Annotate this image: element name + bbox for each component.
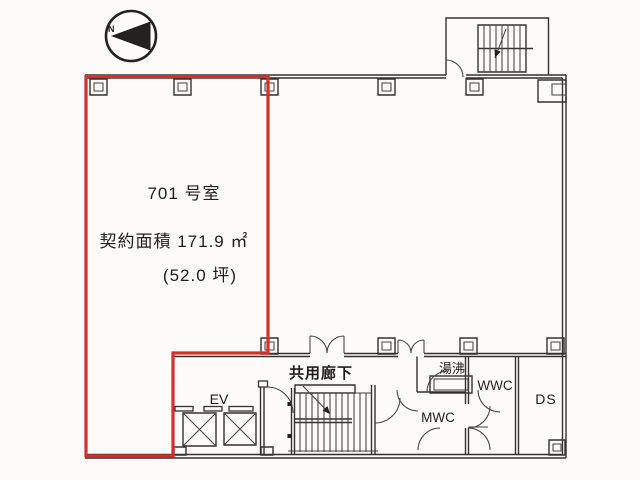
corridor-label: 共用廊下 [289,364,353,382]
stairwell-main-header [295,385,355,393]
compass-needle [111,22,151,51]
building-outer-walls [85,75,566,458]
floor-plan-page: N 701 号室 契約面積 171.9 ㎡ (52.0 坪) EV 共用廊下 湯… [0,0,640,480]
contract-area-label: 契約面積 171.9 ㎡ [100,232,249,251]
elevator-door-jamb [229,407,253,412]
elevator-wall-stub [259,381,268,387]
floor-plan-drawing: N 701 号室 契約面積 171.9 ㎡ (52.0 坪) EV 共用廊下 湯… [0,0,640,480]
column-outer-squares [90,79,566,455]
room-number-label: 701 号室 [147,184,220,203]
stair-wall-dot [288,434,292,438]
elevator-label: EV [210,391,229,407]
area-tsubo-label: (52.0 坪) [163,266,237,285]
stairwell-top-treads-frame [478,25,533,72]
stairwell-top-arrowhead [495,50,501,59]
wc-partition-wall [466,357,469,455]
structural-columns [90,79,566,455]
elevator-shafts [183,413,256,446]
compass-icon: N [106,11,156,61]
elevator-door-jamb [204,407,222,412]
outer-wall-lines [85,75,566,458]
stairwell-main-mid-rail [295,419,353,423]
ds-label: DS [535,391,556,407]
elevator-hall-wall [261,383,265,455]
sanitary-block [417,357,519,455]
elevator-shaft-cross [183,413,256,446]
hot-water-label: 湯沸 [439,361,465,376]
hot-water-sink-inner [434,379,468,390]
mwc-label: MWC [421,410,455,425]
stairwell-top-enclosure [446,18,549,75]
compass-north-label: N [108,24,115,34]
stairwell-main [288,385,379,455]
ds-partition-wall [516,357,519,455]
stairwell-main-walls [292,385,376,455]
elevator-door-jamb [175,407,193,412]
wwc-label: WWC [477,378,512,393]
stairwell-top [446,18,549,75]
